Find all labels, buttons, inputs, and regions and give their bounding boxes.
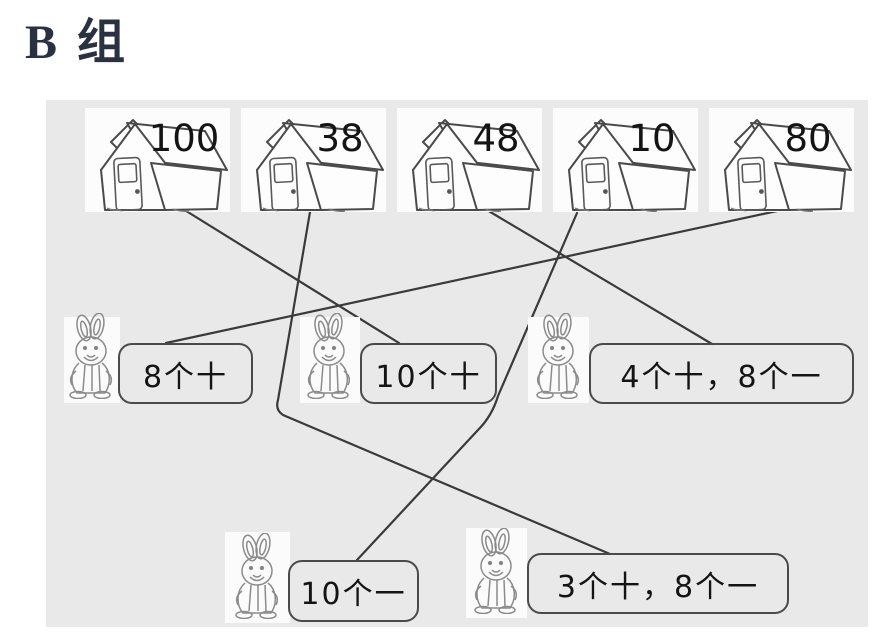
house-number: 48 (455, 116, 537, 160)
rabbit-drawing-art (530, 313, 588, 399)
worksheet-page: B 组 100 (0, 0, 881, 636)
house-number: 10 (611, 116, 693, 160)
rabbit-drawing-art (468, 528, 526, 614)
label-10-ones: 10个一 (288, 560, 419, 622)
connection-line-48 (487, 210, 712, 344)
rabbit-drawing-art (229, 533, 287, 619)
house-number: 38 (299, 116, 381, 160)
connection-line-100 (183, 209, 399, 343)
house-100: 100 (85, 108, 230, 212)
section-title: B 组 (25, 2, 129, 72)
connection-line-80 (166, 211, 777, 343)
rabbit-drawing-art (301, 313, 359, 399)
rabbit-icon (528, 317, 589, 403)
label-3-tens-8-ones: 3个十，8个一 (527, 553, 789, 614)
rabbit-icon (225, 532, 290, 623)
house-48: 48 (397, 108, 542, 212)
matching-exercise-panel: 100 38 (46, 100, 868, 627)
rabbit-icon (466, 528, 527, 618)
rabbit-icon (64, 317, 120, 403)
house-number: 100 (143, 116, 225, 160)
rabbit-icon (300, 317, 360, 403)
rabbit-drawing-art (63, 313, 121, 399)
house-80: 80 (709, 108, 854, 212)
house-38: 38 (241, 108, 386, 212)
label-4-tens-8-ones: 4个十，8个一 (589, 343, 854, 404)
house-number: 80 (767, 116, 849, 160)
label-8-tens: 8个十 (118, 343, 253, 404)
house-10: 10 (553, 108, 698, 212)
label-10-tens: 10个十 (360, 343, 497, 404)
